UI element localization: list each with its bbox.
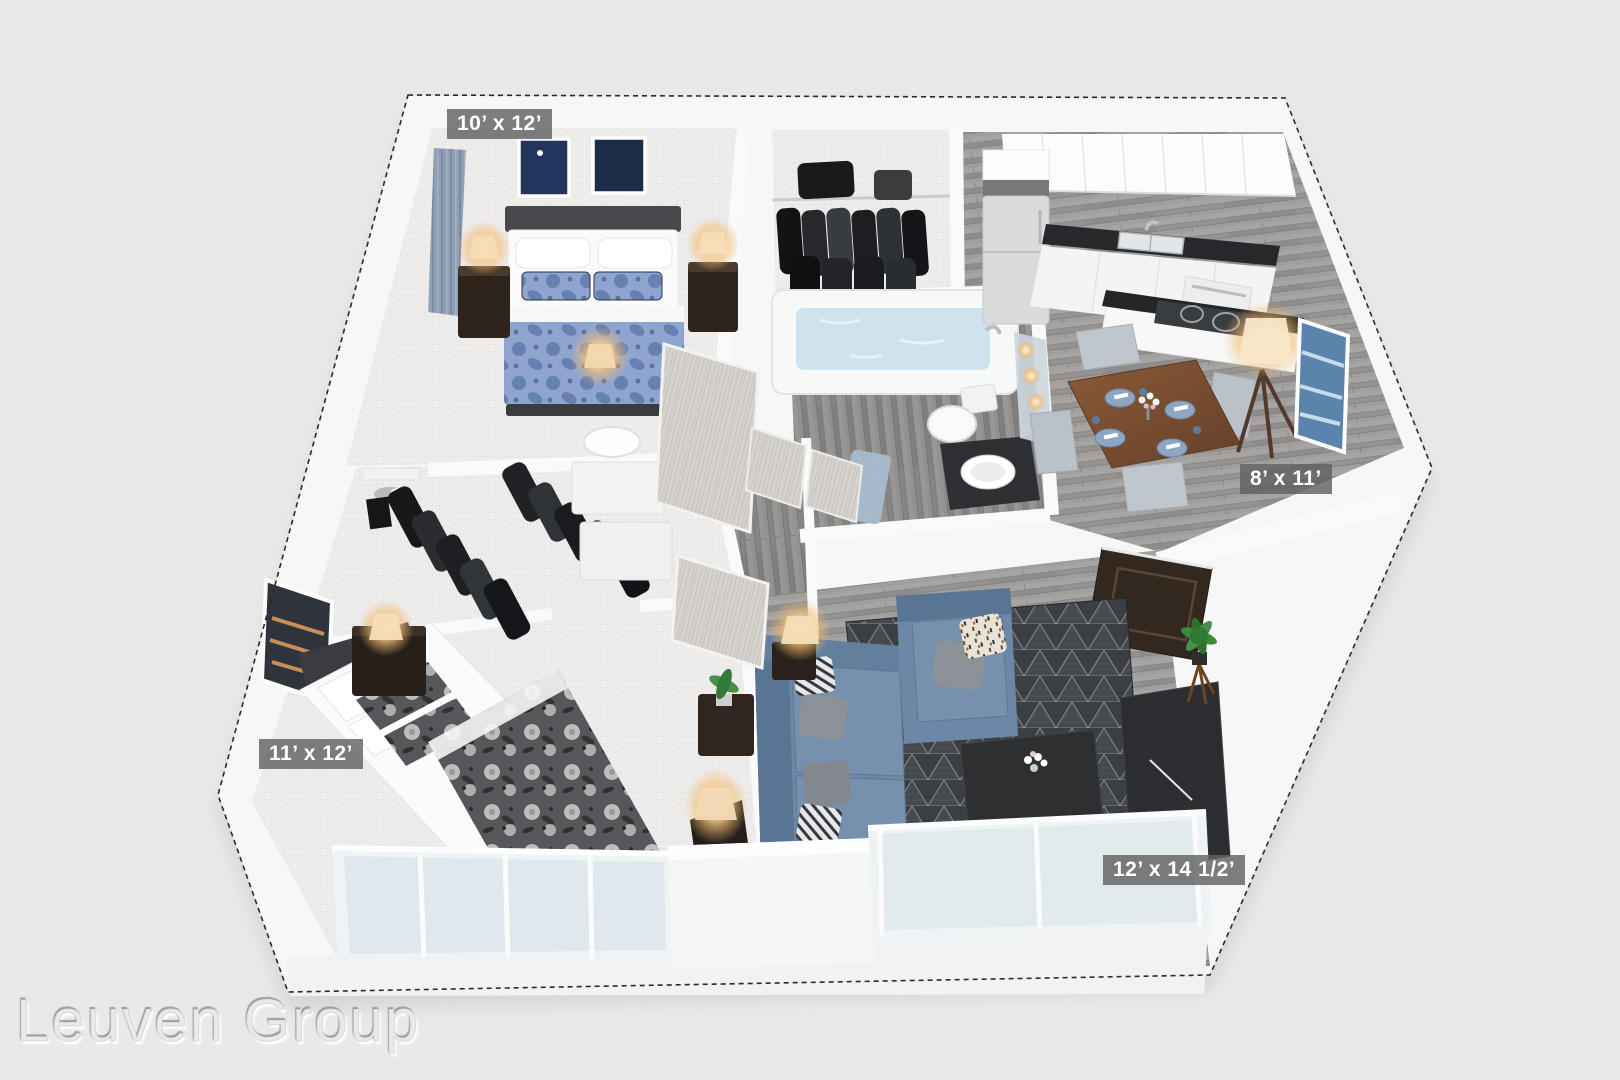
room-dimension-label-living: 12’ x 14 1/2’ (1103, 855, 1245, 885)
wall-art (593, 138, 645, 193)
bath-water (796, 308, 990, 370)
room-dimension-label-bedroom-2: 11’ x 12’ (259, 739, 363, 769)
armchair (896, 588, 1018, 744)
nightstand (458, 266, 510, 338)
garment-bag (366, 497, 392, 530)
duffel-bag (797, 161, 855, 200)
dining-chair (1122, 462, 1188, 512)
throw-pillow (802, 760, 852, 808)
sliding-barn-door (656, 344, 758, 532)
room-dimension-label-dining: 8’ x 11’ (1240, 464, 1332, 494)
fridge-cabinet (983, 150, 1049, 180)
vase-flowers (1030, 764, 1038, 772)
nightstand (688, 262, 738, 332)
floorplan-screenshot: 10’ x 12’ 8’ x 11’ 11’ x 12’ 12’ x 14 1/… (0, 0, 1620, 1080)
dresser (572, 462, 664, 514)
dining-chair (1076, 324, 1140, 370)
company-watermark: Leuven Group (16, 986, 420, 1055)
round-table (584, 427, 640, 457)
room-dimension-label-bedroom-1: 10’ x 12’ (447, 109, 552, 139)
window-wall (332, 846, 676, 962)
dining-chair (1030, 410, 1078, 474)
throw-pillow (958, 612, 1007, 660)
handbag (874, 170, 912, 200)
shoe-shelf (362, 468, 420, 480)
dresser (580, 522, 672, 580)
floorplan-render (0, 0, 1620, 1080)
wall-art (519, 139, 569, 196)
throw-pillow (798, 694, 848, 741)
toilet (928, 406, 976, 442)
